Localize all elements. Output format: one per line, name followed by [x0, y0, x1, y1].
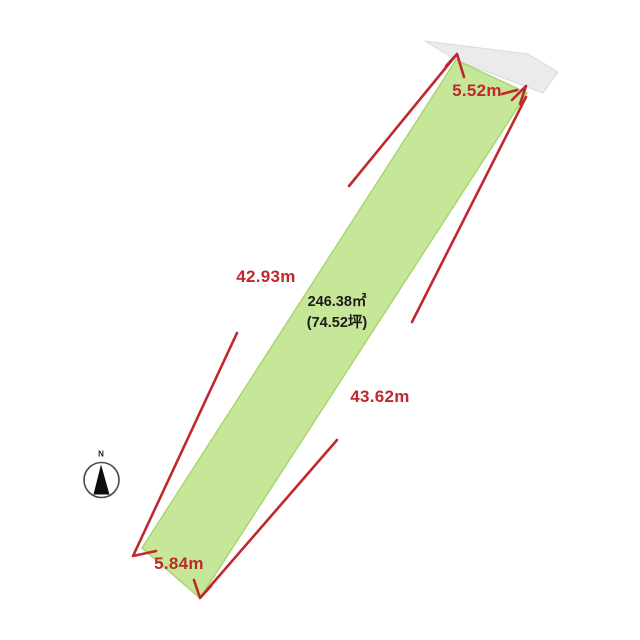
- area-label-tsubo: (74.52坪): [307, 313, 367, 334]
- dimension-label-right: 43.62m: [350, 387, 409, 407]
- dimension-label-top: 5.52m: [452, 81, 502, 101]
- area-label: 246.38㎡ (74.52坪): [307, 292, 367, 334]
- dimension-label-left: 42.93m: [236, 267, 295, 287]
- area-label-sqm: 246.38㎡: [307, 292, 367, 313]
- dimension-label-bottom: 5.84m: [154, 554, 204, 574]
- land-plot-diagram: N 5.52m 42.93m 43.62m 5.84m 246.38㎡ (74.…: [0, 0, 640, 640]
- compass-north-label: N: [98, 450, 104, 459]
